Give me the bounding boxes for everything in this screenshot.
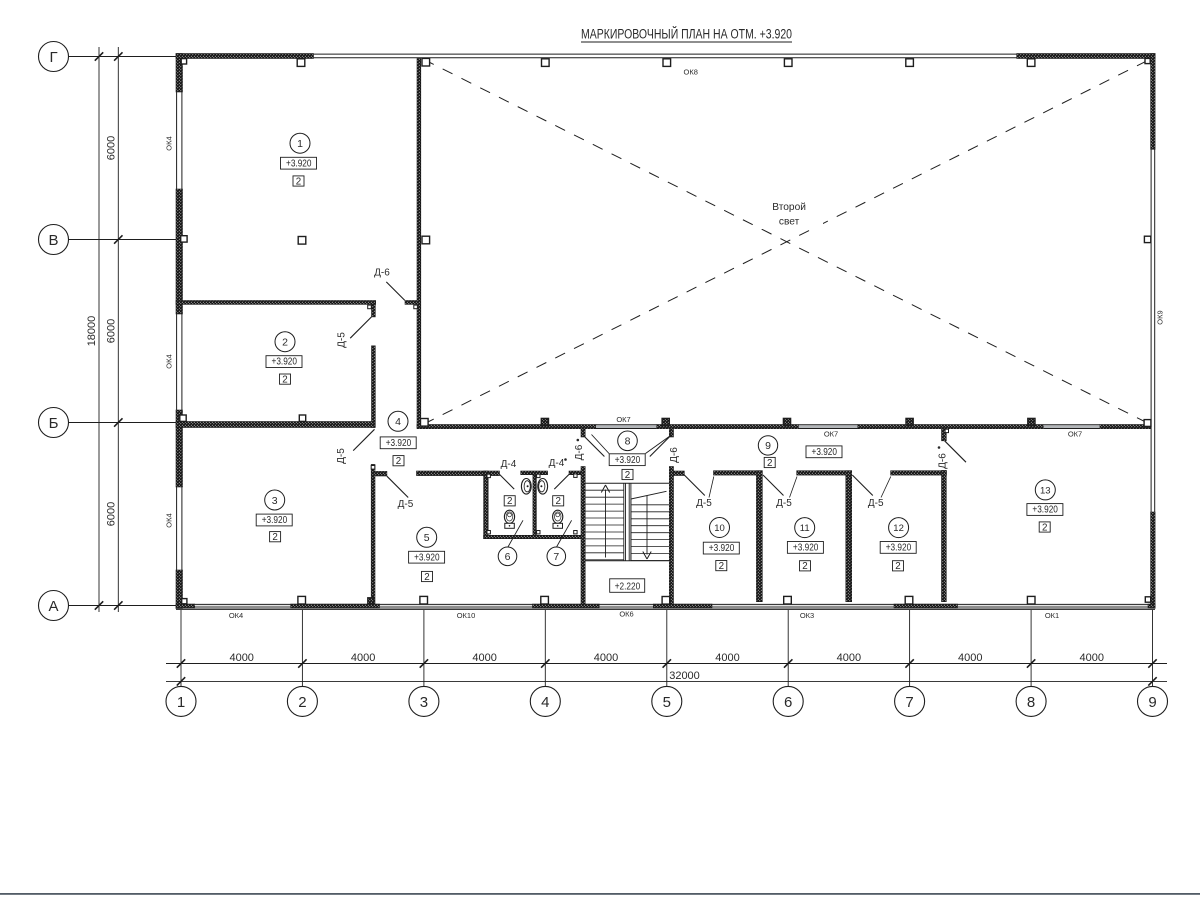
svg-text:ОК7: ОК7 <box>1068 430 1082 439</box>
svg-text:+3.920: +3.920 <box>793 543 819 554</box>
svg-text:+3.920: +3.920 <box>272 357 298 368</box>
svg-text:ОК6: ОК6 <box>619 610 633 619</box>
svg-text:ОК8: ОК8 <box>684 68 698 77</box>
svg-text:8: 8 <box>625 436 631 448</box>
svg-text:4000: 4000 <box>472 652 496 664</box>
svg-text:ОК7: ОК7 <box>616 415 630 424</box>
svg-text:Д-5: Д-5 <box>336 448 347 464</box>
svg-text:2: 2 <box>282 374 287 385</box>
svg-text:10: 10 <box>714 523 725 534</box>
svg-text:Д-4: Д-4 <box>549 458 565 469</box>
svg-text:6000: 6000 <box>106 319 118 343</box>
svg-text:4000: 4000 <box>715 652 739 664</box>
svg-text:Д-4: Д-4 <box>501 459 517 470</box>
svg-text:Д-5: Д-5 <box>868 498 884 509</box>
svg-text:ОК3: ОК3 <box>800 611 814 620</box>
svg-text:Д-5: Д-5 <box>696 498 712 509</box>
svg-text:ОК4: ОК4 <box>229 611 243 620</box>
svg-text:2: 2 <box>895 561 900 572</box>
svg-text:ОК1: ОК1 <box>1045 611 1059 620</box>
svg-text:ОК4: ОК4 <box>165 354 174 368</box>
svg-text:7: 7 <box>553 551 559 563</box>
svg-text:+3.920: +3.920 <box>286 158 312 169</box>
svg-text:2: 2 <box>396 456 401 467</box>
svg-text:2: 2 <box>298 694 306 711</box>
svg-text:Д-6: Д-6 <box>574 444 585 460</box>
svg-text:Д-6: Д-6 <box>938 453 949 469</box>
svg-text:Д-5: Д-5 <box>337 332 348 348</box>
svg-text:ОК7: ОК7 <box>824 430 838 439</box>
svg-text:2: 2 <box>802 561 807 572</box>
svg-text:12: 12 <box>893 523 904 534</box>
svg-text:4: 4 <box>395 416 401 428</box>
svg-text:Д-5: Д-5 <box>398 499 414 510</box>
svg-text:2: 2 <box>767 458 772 469</box>
svg-text:+3.920: +3.920 <box>709 543 735 554</box>
svg-text:3: 3 <box>272 495 278 507</box>
svg-text:4: 4 <box>541 694 549 711</box>
svg-text:1: 1 <box>297 138 303 150</box>
svg-text:В: В <box>48 232 58 249</box>
svg-text:ОК10: ОК10 <box>457 611 476 620</box>
svg-text:9: 9 <box>1148 694 1156 711</box>
svg-text:МАРКИРОВОЧНЫЙ ПЛАН НА ОТМ. +3.: МАРКИРОВОЧНЫЙ ПЛАН НА ОТМ. +3.920 <box>581 27 792 42</box>
svg-text:2: 2 <box>424 572 429 583</box>
svg-text:4000: 4000 <box>351 652 375 664</box>
svg-text:13: 13 <box>1040 485 1051 496</box>
svg-text:Б: Б <box>49 415 59 432</box>
svg-text:8: 8 <box>1027 694 1035 711</box>
svg-text:ОК9: ОК9 <box>1156 310 1165 324</box>
svg-text:2: 2 <box>1042 522 1047 533</box>
svg-text:А: А <box>48 598 58 615</box>
svg-text:5: 5 <box>424 532 430 544</box>
svg-text:свет: свет <box>779 216 800 227</box>
svg-text:6: 6 <box>505 551 511 563</box>
svg-text:18000: 18000 <box>86 316 98 347</box>
svg-text:2: 2 <box>719 561 724 572</box>
svg-text:Д-5: Д-5 <box>776 498 792 509</box>
svg-text:2: 2 <box>507 496 512 507</box>
svg-text:+3.920: +3.920 <box>615 455 641 466</box>
svg-text:+2.220: +2.220 <box>615 582 641 593</box>
svg-text:6000: 6000 <box>106 136 118 160</box>
svg-text:Д-6: Д-6 <box>669 447 680 463</box>
svg-text:+3.920: +3.920 <box>886 543 912 554</box>
svg-text:+3.920: +3.920 <box>1032 505 1058 516</box>
svg-text:+3.920: +3.920 <box>386 438 412 449</box>
svg-text:+3.920: +3.920 <box>812 447 838 458</box>
svg-text:2: 2 <box>625 470 630 481</box>
svg-text:5: 5 <box>663 694 671 711</box>
svg-text:7: 7 <box>905 694 913 711</box>
svg-text:+3.920: +3.920 <box>262 515 288 526</box>
svg-text:ОК4: ОК4 <box>165 513 174 527</box>
svg-text:Д-6: Д-6 <box>374 268 390 279</box>
svg-text:4000: 4000 <box>229 652 253 664</box>
svg-text:6: 6 <box>784 694 792 711</box>
svg-text:4000: 4000 <box>837 652 861 664</box>
svg-text:+3.920: +3.920 <box>414 552 440 563</box>
svg-text:1: 1 <box>177 694 185 711</box>
svg-text:4000: 4000 <box>594 652 618 664</box>
svg-text:9: 9 <box>765 440 771 452</box>
svg-text:6000: 6000 <box>106 502 118 526</box>
svg-text:2: 2 <box>272 532 277 543</box>
svg-text:11: 11 <box>800 523 810 534</box>
svg-text:Г: Г <box>49 49 57 66</box>
svg-text:Второй: Второй <box>772 202 806 213</box>
svg-text:2: 2 <box>282 337 288 349</box>
svg-text:2: 2 <box>296 176 301 187</box>
svg-text:ОК4: ОК4 <box>165 136 174 150</box>
svg-text:2: 2 <box>555 496 560 507</box>
svg-text:3: 3 <box>420 694 428 711</box>
svg-text:4000: 4000 <box>958 652 982 664</box>
svg-text:4000: 4000 <box>1080 652 1104 664</box>
svg-text:32000: 32000 <box>669 670 700 682</box>
